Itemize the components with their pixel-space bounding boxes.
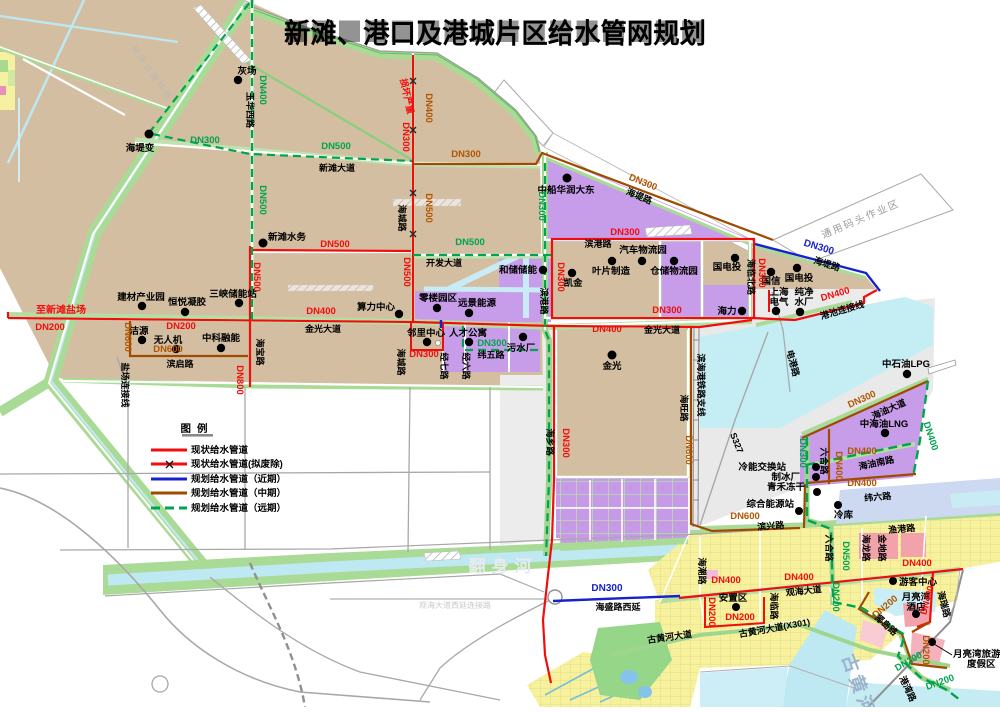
svg-text:远景能源: 远景能源 [458, 297, 497, 309]
svg-text:海龙路: 海龙路 [861, 534, 871, 562]
svg-text:DN200: DN200 [166, 321, 196, 332]
svg-text:中海油LNG: 中海油LNG [860, 418, 909, 430]
svg-text:海城路: 海城路 [396, 348, 406, 376]
svg-text:DN500: DN500 [257, 185, 268, 215]
svg-text:DN300: DN300 [652, 305, 682, 316]
svg-text:金光大道: 金光大道 [643, 325, 680, 335]
svg-text:恒悦凝胶: 恒悦凝胶 [168, 296, 207, 308]
svg-text:DN300: DN300 [591, 583, 623, 594]
svg-text:盐场连接线: 盐场连接线 [120, 362, 130, 407]
svg-text:金光大道: 金光大道 [304, 324, 341, 334]
svg-text:海旺路: 海旺路 [679, 394, 689, 422]
svg-text:图例: 图例 [181, 422, 214, 435]
svg-text:DN800: DN800 [234, 365, 245, 395]
svg-text:DN300: DN300 [451, 149, 481, 160]
svg-text:DN600: DN600 [683, 435, 694, 465]
svg-text:翻身河: 翻身河 [469, 557, 538, 576]
svg-text:金光: 金光 [601, 360, 622, 372]
svg-text:DN200: DN200 [920, 635, 931, 665]
svg-text:算力中心: 算力中心 [356, 301, 396, 313]
svg-text:DN300: DN300 [756, 258, 767, 288]
svg-text:海临北路: 海临北路 [746, 259, 756, 296]
svg-text:DN600: DN600 [730, 511, 760, 522]
svg-text:电气: 电气 [769, 296, 789, 308]
svg-text:DN400: DN400 [847, 478, 877, 489]
svg-text:滨海港铁路支线: 滨海港铁路支线 [696, 353, 706, 416]
svg-text:DN500: DN500 [251, 262, 262, 292]
svg-text:建材产业园: 建材产业园 [116, 291, 165, 303]
svg-text:滨港路: 滨港路 [539, 287, 549, 315]
svg-text:海潮路: 海潮路 [697, 557, 707, 585]
svg-text:规划给水管道（中期）: 规划给水管道（中期） [191, 487, 286, 499]
svg-text:综合能源站: 综合能源站 [746, 498, 794, 510]
svg-text:开发大道: 开发大道 [426, 258, 462, 268]
svg-text:邻里中心: 邻里中心 [406, 327, 446, 339]
svg-text:海堤变: 海堤变 [126, 142, 155, 154]
svg-text:规划给水管道（近期）: 规划给水管道（近期） [191, 473, 286, 485]
svg-text:冷库: 冷库 [834, 509, 854, 521]
svg-text:DN200: DN200 [706, 597, 717, 627]
svg-text:现状给水管道: 现状给水管道 [191, 444, 249, 456]
svg-text:安置区: 安置区 [719, 592, 748, 604]
svg-text:仓储物流园: 仓储物流园 [649, 265, 698, 277]
svg-text:DN400: DN400 [833, 451, 844, 481]
svg-text:DN400: DN400 [423, 93, 434, 123]
svg-text:DN400: DN400 [306, 306, 336, 317]
svg-text:DN500: DN500 [320, 239, 350, 250]
svg-text:零楼园区: 零楼园区 [418, 292, 458, 304]
svg-text:六合路: 六合路 [819, 447, 829, 475]
svg-text:DN300: DN300 [610, 227, 640, 238]
svg-text:国电投: 国电投 [785, 272, 814, 284]
svg-text:DN500: DN500 [455, 237, 485, 248]
svg-text:青禾冻干: 青禾冻干 [767, 481, 806, 493]
svg-text:DN200: DN200 [35, 322, 65, 333]
svg-text:DN400: DN400 [711, 575, 741, 586]
svg-text:DN300: DN300 [477, 338, 507, 349]
svg-text:DN600: DN600 [153, 344, 183, 355]
svg-text:DN300: DN300 [797, 438, 808, 468]
svg-text:DN500: DN500 [423, 193, 434, 223]
svg-text:和储储能: 和储储能 [498, 264, 538, 276]
svg-text:DN200: DN200 [830, 582, 841, 612]
svg-text:DN500: DN500 [321, 141, 351, 152]
svg-text:DN600: DN600 [122, 322, 133, 352]
svg-text:新滩水务: 新滩水务 [268, 231, 307, 243]
svg-text:污水厂: 污水厂 [507, 342, 536, 354]
svg-text:滨港路: 滨港路 [584, 239, 612, 249]
svg-text:滨启路: 滨启路 [166, 359, 194, 369]
svg-text:DN300: DN300 [560, 428, 571, 458]
svg-text:DN300: DN300 [190, 135, 220, 146]
svg-text:海宝路: 海宝路 [255, 338, 265, 366]
svg-text:六合路: 六合路 [824, 534, 834, 562]
svg-text:DN500: DN500 [840, 541, 851, 571]
svg-text:滨兴路: 滨兴路 [757, 520, 786, 532]
svg-text:DN300: DN300 [400, 122, 411, 152]
svg-text:汽车物流园: 汽车物流园 [619, 244, 667, 256]
svg-text:规划给水管道（远期）: 规划给水管道（远期） [191, 502, 286, 514]
svg-text:至新滩盐场: 至新滩盐场 [36, 304, 86, 316]
svg-text:海盛路西延: 海盛路西延 [595, 602, 641, 612]
svg-text:叶片制造: 叶片制造 [592, 265, 631, 277]
svg-text:国电投: 国电投 [713, 261, 742, 273]
svg-text:新滩大道: 新滩大道 [319, 163, 355, 173]
svg-text:DN400: DN400 [784, 572, 814, 583]
svg-text:DN400: DN400 [257, 75, 268, 105]
svg-text:水厂: 水厂 [793, 296, 814, 308]
svg-text:中科融能: 中科融能 [202, 332, 241, 344]
svg-text:海乡路: 海乡路 [545, 428, 555, 456]
svg-text:海临路: 海临路 [769, 592, 779, 620]
svg-text:度假区: 度假区 [967, 658, 996, 670]
svg-text:DN500: DN500 [401, 257, 412, 287]
svg-text:中石油LPG: 中石油LPG [882, 358, 930, 370]
svg-text:金地路: 金地路 [877, 533, 887, 562]
svg-text:观海大道西延连接路: 观海大道西延连接路 [419, 601, 491, 610]
svg-text:现状给水管道(拟废除): 现状给水管道(拟废除) [191, 458, 283, 470]
svg-text:三峡储能站: 三峡储能站 [209, 288, 257, 300]
svg-text:经七路: 经七路 [439, 352, 449, 380]
svg-text:DN200: DN200 [725, 612, 755, 623]
svg-text:海城路: 海城路 [397, 204, 407, 232]
svg-text:海力: 海力 [717, 305, 736, 317]
svg-text:纬五路: 纬五路 [477, 350, 505, 360]
svg-text:DN400: DN400 [592, 324, 622, 335]
svg-text:灰场: 灰场 [237, 65, 257, 77]
svg-text:DN400: DN400 [902, 558, 932, 569]
svg-text:DN300: DN300 [555, 262, 566, 292]
svg-text:DN300: DN300 [536, 191, 547, 221]
svg-text:DN300: DN300 [409, 349, 439, 360]
svg-text:经六路: 经六路 [461, 352, 471, 380]
svg-text:玉华西路: 玉华西路 [245, 92, 255, 129]
svg-text:DN400: DN400 [847, 446, 877, 457]
svg-text:新滩、港口及港城片区给水管网规划: 新滩、港口及港城片区给水管网规划 [284, 18, 706, 49]
